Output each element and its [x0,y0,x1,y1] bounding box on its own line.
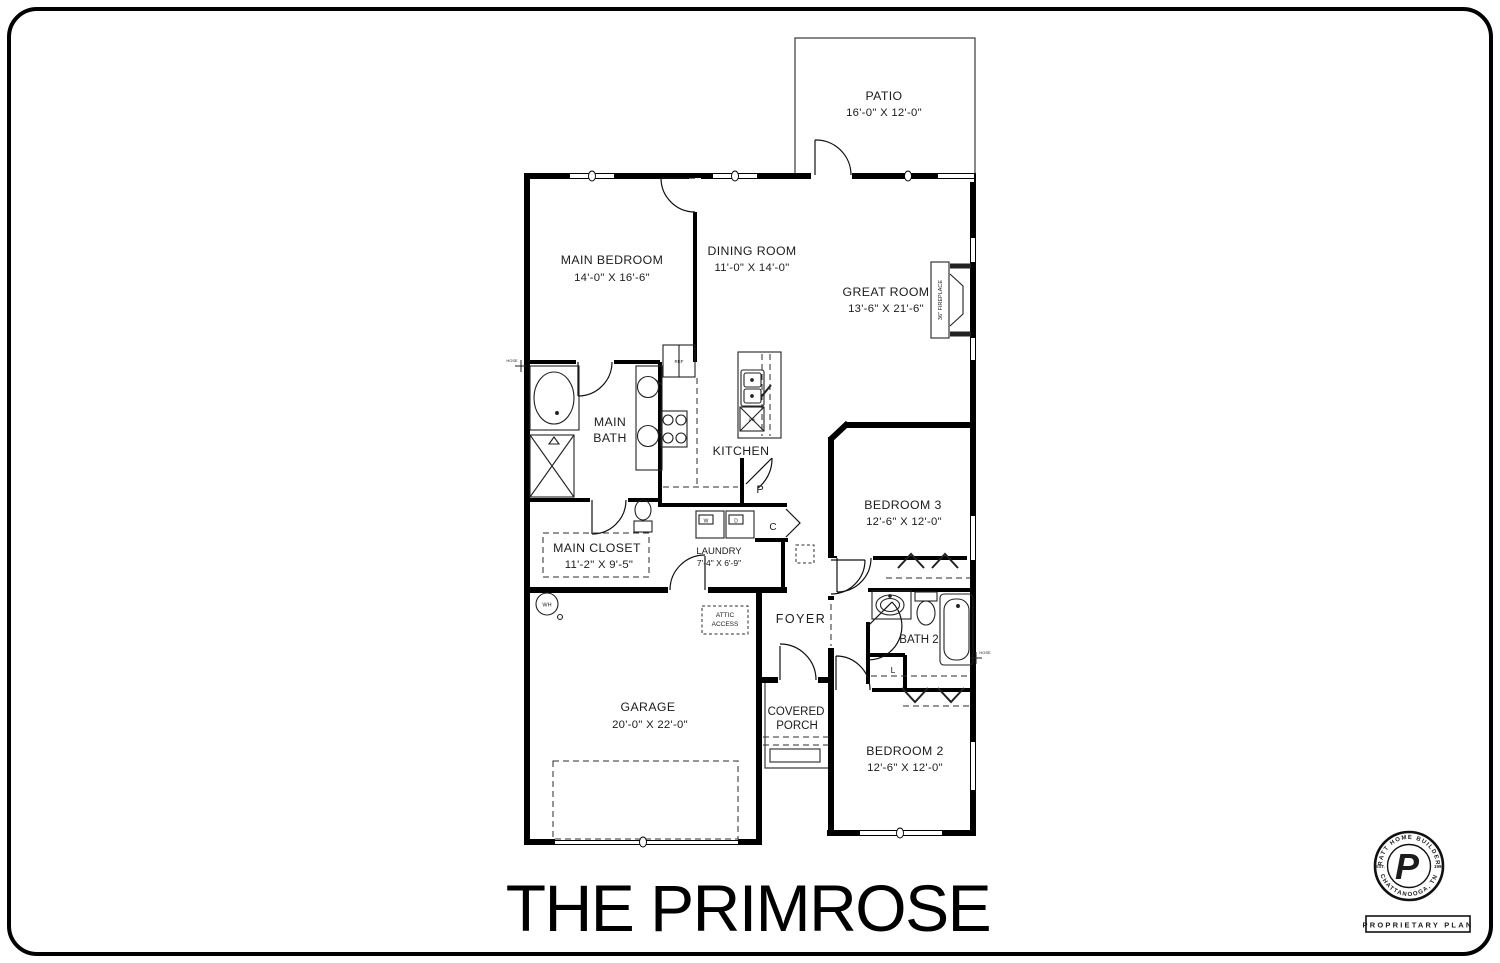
bedroom2-dims: 12'-6" X 12'-0" [867,762,943,774]
marker-labels: ATTIC ACCESS WH W D P C L DW REF 36" FIR… [506,280,991,675]
attic-access-box [702,606,748,634]
dryer-icon [726,511,754,538]
fridge-label: REF [675,359,684,364]
closet-chevrons [898,554,964,702]
floor-plan-sheet: PATIO 16'-0" X 12'-0" MAIN BEDROOM 14'-0… [0,0,1500,963]
garage-dims: 20'-0" X 22'-0" [612,719,688,731]
garage-label: GARAGE [620,700,675,714]
bedroom3-dims: 12'-6" X 12'-0" [866,516,942,528]
toilet2-icon [915,592,937,625]
porch-edge-lines [763,737,829,745]
kitchen-island-icon [738,352,781,438]
hose-bib-label-left: HOSE [506,358,518,363]
washer-icon [696,511,724,538]
washer-label: W [704,519,709,525]
main-closet-label: MAIN CLOSET [553,541,641,555]
logo-monogram: P [1395,846,1420,887]
fireplace-label: 36" FIREPLACE [938,280,944,320]
floor-plan-drawing: PATIO 16'-0" X 12'-0" MAIN BEDROOM 14'-0… [0,0,1500,963]
laundry-dims: 7'-4" X 6'-9" [697,558,741,568]
logo-year: 1996 [1434,864,1445,869]
patio-door [815,140,851,175]
great-room-dims: 13'-6" X 21'-6" [848,303,924,315]
patio-dims: 16'-0" X 12'-0" [846,107,922,119]
bedroom2-label: BEDROOM 2 [866,744,943,758]
bath2-label: BATH 2 [899,634,938,646]
main-bath-label-1: MAIN [594,415,626,429]
water-heater-label: WH [542,603,551,609]
shower-icon [530,435,574,497]
logo-est: EST. [1375,864,1385,869]
coat-closet-bifold-door [786,509,800,537]
pantry-label: P [756,484,763,496]
fireplace-icon [931,262,971,338]
range-icon [661,411,687,447]
builder-logo: PRATT HOME BUILDERS CHATTANOOGA, TN EST.… [0,0,1473,932]
attic-access-label-2: ACCESS [712,621,739,628]
covered-porch-label-1: COVERED [768,706,825,718]
main-bedroom-dims: 14'-0" X 16'-6" [574,272,650,284]
laundry-label: LAUNDRY [696,546,742,557]
main-bath-label-2: BATH [593,431,626,445]
kitchen-label: KITCHEN [713,444,770,458]
main-bedroom-label: MAIN BEDROOM [561,253,664,267]
dishwasher-label: DW [749,417,756,422]
bathtub2-icon [940,594,973,665]
logo-banner-text: PROPRIETARY PLAN [1363,921,1474,930]
covered-porch-label-2: PORCH [776,720,818,732]
attic-access-label-1: ATTIC [716,612,735,619]
plan-title: THE PRIMROSE [506,871,990,945]
logo-arc-top: PRATT HOME BUILDERS [0,0,1440,866]
porch-step [770,749,820,762]
dining-dims: 11'-0" X 14'-0" [714,262,789,274]
toilet-icon [634,500,652,532]
kitchen-counter-edge [663,378,738,487]
linen-label: L [891,665,896,675]
hose-bib-label-right: HOSE [979,650,991,655]
bathtub-icon [530,366,579,430]
great-room-label: GREAT ROOM [843,285,930,299]
main-closet-dims: 11'-2" X 9'-5" [565,559,633,571]
patio-label: PATIO [865,89,902,103]
garage-door-panel [553,761,738,839]
vanity2-icon [872,591,911,619]
coat-closet-label: C [769,522,776,533]
dryer-label: D [734,519,738,525]
foyer-access-box [796,545,814,563]
dining-label: DINING ROOM [707,244,796,258]
bedroom3-label: BEDROOM 3 [864,498,941,512]
foyer-label: FOYER [776,612,827,626]
